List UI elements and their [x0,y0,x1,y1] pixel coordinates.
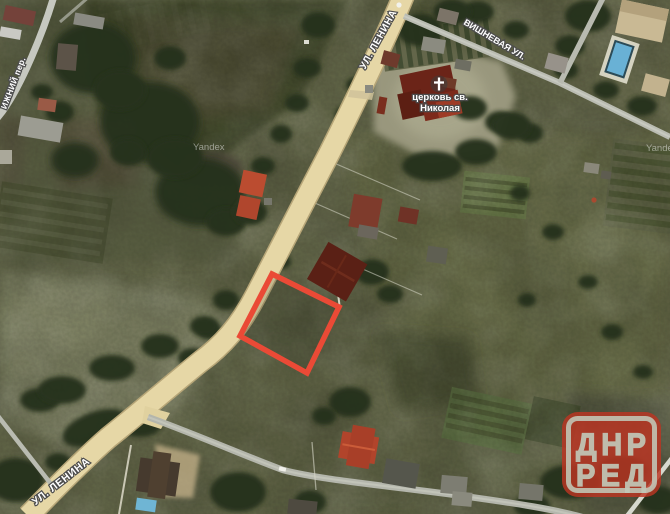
svg-text:церковь св.: церковь св. [412,92,467,103]
svg-text:Yandex: Yandex [646,143,670,154]
svg-text:Yandex: Yandex [193,142,225,153]
svg-text:Николая: Николая [420,103,460,114]
svg-text:РЕД: РЕД [576,458,646,494]
